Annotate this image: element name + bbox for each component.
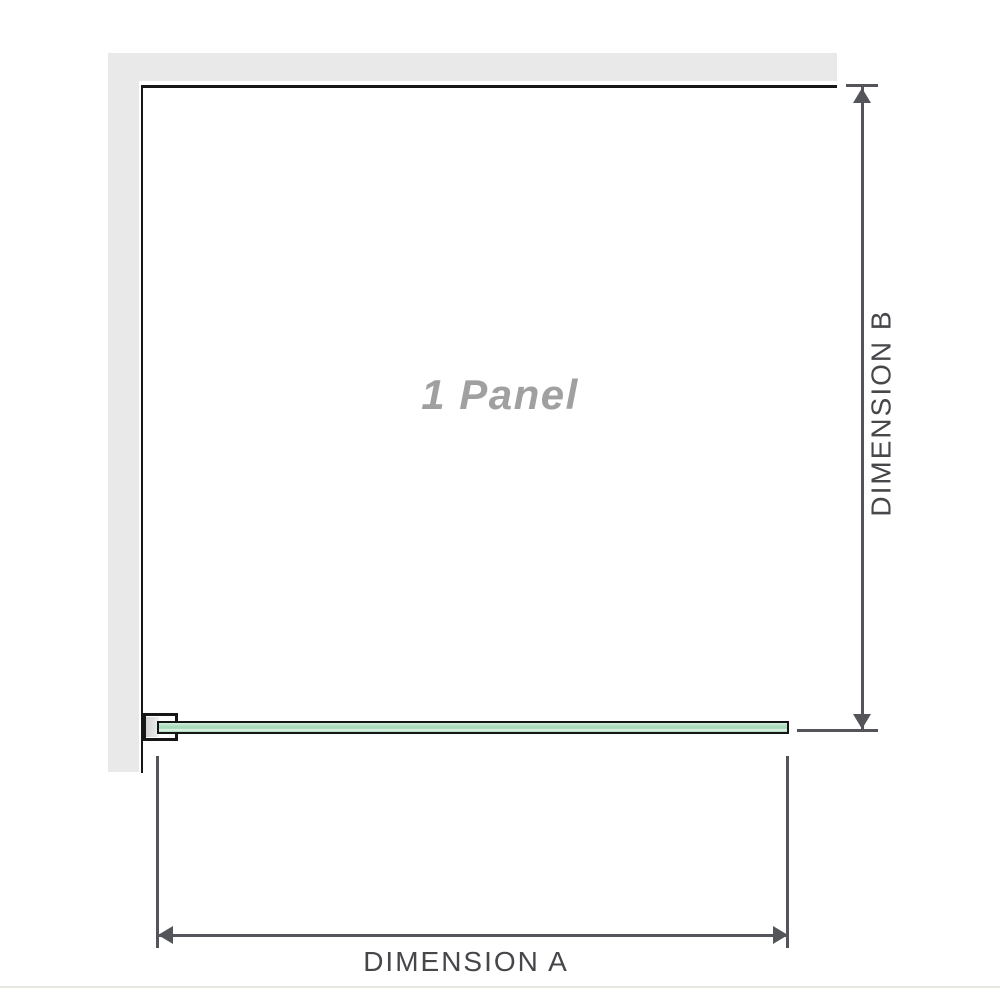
dimension-b-tick-bottom bbox=[797, 729, 878, 732]
wall-side bbox=[108, 53, 139, 772]
dimension-b-line bbox=[861, 87, 864, 731]
wall-top bbox=[108, 53, 837, 81]
shower-screen-dimension-diagram: 1 Panel DIMENSION B DIMENSION A bbox=[0, 0, 1000, 1000]
dimension-a-line bbox=[158, 934, 788, 937]
dimension-b-label: DIMENSION B bbox=[867, 261, 897, 566]
dimension-a-label: DIMENSION A bbox=[266, 946, 666, 978]
dimension-b-arrow-up-icon bbox=[853, 88, 871, 103]
wall-edge-left bbox=[141, 85, 143, 773]
dimension-a-arrow-right-icon bbox=[773, 926, 788, 944]
panel-count-label: 1 Panel bbox=[290, 371, 710, 419]
dimension-a-extension-right bbox=[786, 756, 789, 948]
dimension-a-arrow-left-icon bbox=[158, 926, 173, 944]
glass-panel bbox=[157, 721, 789, 734]
wall-edge-top bbox=[141, 85, 837, 88]
dimension-b-arrow-down-icon bbox=[853, 714, 871, 729]
page-bottom-divider bbox=[0, 986, 1000, 988]
dimension-a-extension-left bbox=[156, 756, 159, 948]
